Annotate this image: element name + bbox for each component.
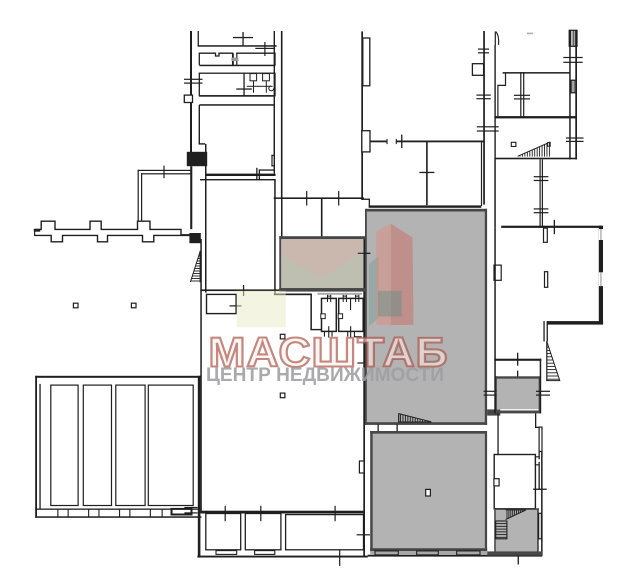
svg-text:ЦЕНТР НЕДВИЖИМОСТИ: ЦЕНТР НЕДВИЖИМОСТИ [206, 364, 444, 386]
